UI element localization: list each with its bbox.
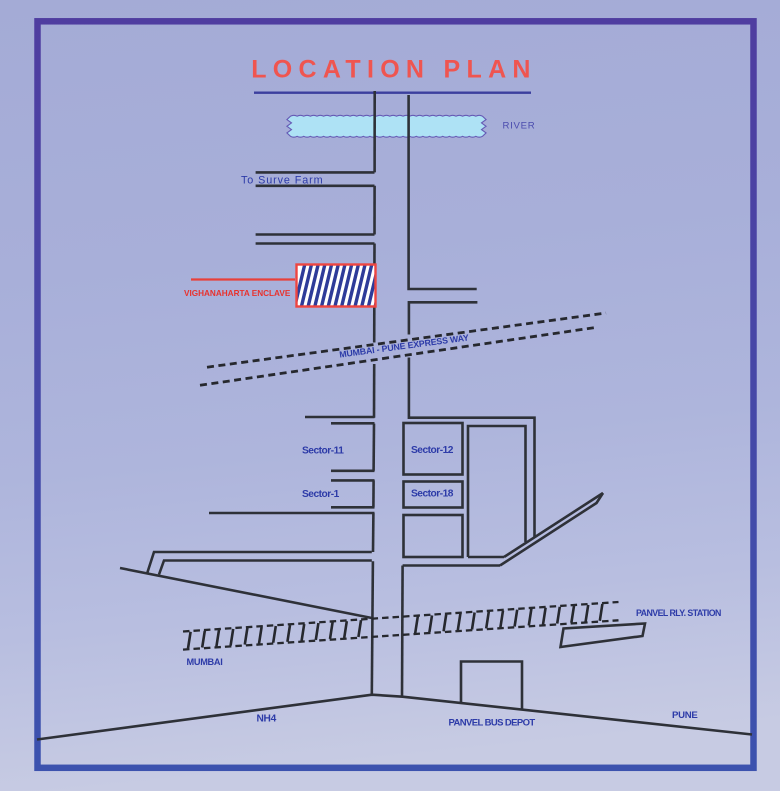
- svg-text:MUMBAI: MUMBAI: [187, 657, 223, 667]
- svg-text:Sector-11: Sector-11: [302, 446, 344, 457]
- svg-text:Sector-12: Sector-12: [411, 445, 454, 456]
- svg-text:To Surve Farm: To Surve Farm: [241, 175, 324, 187]
- svg-text:PUNE: PUNE: [672, 710, 698, 721]
- svg-text:LOCATION PLAN: LOCATION PLAN: [251, 56, 537, 84]
- svg-text:NH4: NH4: [257, 714, 277, 725]
- svg-text:VIGHANAHARTA ENCLAVE: VIGHANAHARTA ENCLAVE: [184, 289, 291, 298]
- svg-text:Sector-18: Sector-18: [411, 489, 454, 500]
- svg-text:Sector-1: Sector-1: [302, 489, 340, 500]
- svg-text:PANVEL RLY. STATION: PANVEL RLY. STATION: [636, 608, 721, 618]
- svg-text:RIVER: RIVER: [503, 121, 536, 132]
- svg-text:PANVEL BUS DEPOT: PANVEL BUS DEPOT: [449, 718, 536, 729]
